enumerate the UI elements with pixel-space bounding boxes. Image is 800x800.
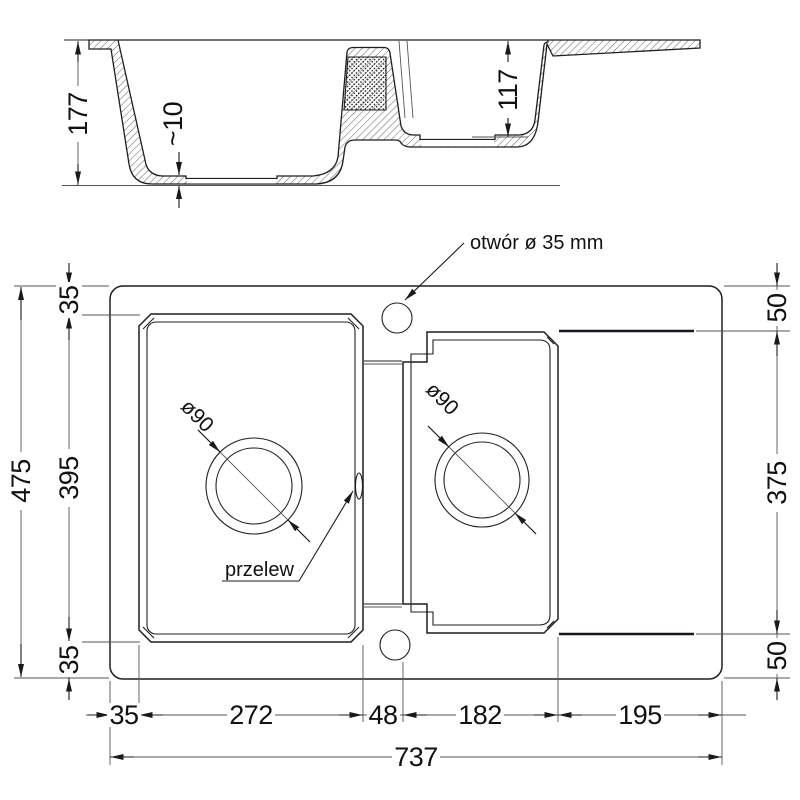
- small-bowl-outer-rim: [403, 332, 558, 633]
- dim-text-395: 395: [54, 456, 84, 500]
- tap-hole-section-line: [399, 41, 405, 118]
- sink-outline: [110, 286, 722, 679]
- right-dimensions: 50 375 50: [696, 263, 792, 700]
- tap-hole-annotation: otwór ø 35 mm: [405, 232, 603, 300]
- dim-text-35-top: 35: [54, 285, 84, 314]
- dim-text-35-left: 35: [109, 700, 138, 730]
- dim-text-117: 117: [493, 69, 523, 111]
- dim-text-177: 177: [63, 92, 93, 136]
- dim-text-48: 48: [368, 700, 397, 730]
- small-bowl: [403, 332, 558, 633]
- dim-text-195: 195: [618, 700, 662, 730]
- overflow-slot: [356, 473, 363, 499]
- main-bowl-outer-rim: [139, 314, 363, 642]
- dim-bottom-thickness: ~10: [158, 102, 188, 208]
- main-bowl: [139, 314, 363, 642]
- dim-depth-small: 117: [472, 41, 528, 137]
- bottom-dimensions: 35 272 48 182 195 737: [86, 637, 746, 772]
- divider-core-stipple: [344, 57, 386, 110]
- dim-text-182: 182: [458, 700, 502, 730]
- tap-hole-section-line: [407, 41, 413, 118]
- dim-text-50-bottom: 50: [762, 641, 792, 670]
- main-drain-diameter-annotation: ø90: [176, 395, 310, 542]
- dim-depth-main: 177: [63, 41, 93, 185]
- dim-text-35-bottom: 35: [54, 645, 84, 674]
- dim-text-475: 475: [6, 459, 36, 503]
- main-bowl-inner-rim: [147, 322, 355, 634]
- tap-hole-bottom: [380, 630, 410, 660]
- dim-text-10: ~10: [158, 102, 188, 146]
- technical-drawing-page: 177 ~10 117: [0, 0, 800, 800]
- tap-hole-top: [382, 303, 412, 333]
- cross-section-view: 177 ~10 117: [62, 40, 700, 208]
- plan-view: ø90 ø90 otwór ø 35 mm przelew: [110, 232, 722, 679]
- tap-hole-label: otwór ø 35 mm: [470, 232, 603, 254]
- small-drain-recess: [421, 140, 494, 146]
- sink-drawing: 177 ~10 117: [0, 0, 800, 800]
- dia-text-small: ø90: [421, 378, 463, 420]
- small-drain-diameter-annotation: ø90: [421, 378, 536, 534]
- overflow-label: przelew: [225, 559, 294, 581]
- dia-text-main: ø90: [176, 395, 218, 437]
- dim-text-375: 375: [762, 461, 792, 505]
- main-drain-recess: [187, 179, 276, 183]
- dim-text-272: 272: [229, 700, 273, 730]
- dim-text-50-top: 50: [762, 293, 792, 322]
- dim-text-737: 737: [394, 742, 438, 772]
- left-dimensions: 475 35 395 35: [6, 263, 140, 700]
